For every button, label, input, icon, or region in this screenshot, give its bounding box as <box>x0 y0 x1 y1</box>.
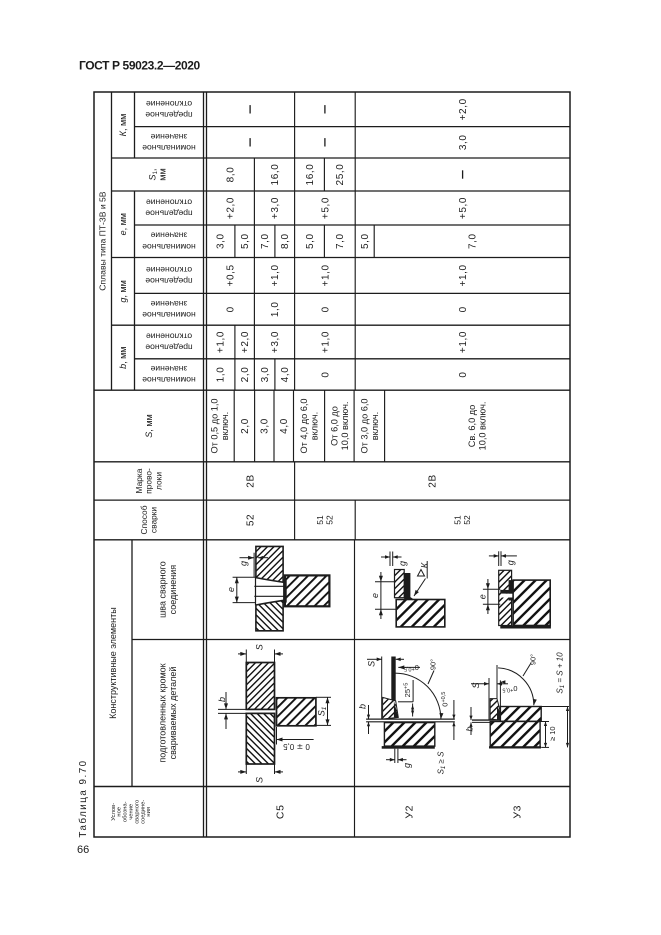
svg-text:16,0: 16,0 <box>305 164 316 186</box>
svg-text:+2,0: +2,0 <box>458 98 469 120</box>
svg-text:значение: значение <box>150 364 187 374</box>
svg-text:+1,0: +1,0 <box>458 264 469 286</box>
svg-text:2В: 2В <box>246 474 257 487</box>
svg-text:0: 0 <box>225 306 236 312</box>
svg-text:10,0 включ.: 10,0 включ. <box>478 402 488 451</box>
svg-text:0+0,5: 0+0,5 <box>441 692 450 707</box>
svg-text:включ.: включ. <box>220 412 230 440</box>
svg-text:52: 52 <box>246 514 257 526</box>
svg-text:Сплавы типа ПТ-3В и 5В: Сплавы типа ПТ-3В и 5В <box>98 191 108 290</box>
svg-text:От 4,0 до 6,0: От 4,0 до 6,0 <box>299 398 309 453</box>
svg-text:значение: значение <box>150 299 187 309</box>
svg-text:≥ 10: ≥ 10 <box>548 726 557 741</box>
svg-text:S: S <box>366 661 376 667</box>
svg-text:+2,0: +2,0 <box>225 197 236 219</box>
svg-text:g: g <box>397 561 407 566</box>
svg-text:25+5: 25+5 <box>403 683 412 698</box>
svg-text:От 3,0 до 6,0: От 3,0 до 6,0 <box>359 398 369 453</box>
svg-text:е: е <box>477 594 487 599</box>
svg-text:е, мм: е, мм <box>118 213 128 235</box>
svg-text:0: 0 <box>320 371 331 377</box>
svg-text:16,0: 16,0 <box>270 164 281 186</box>
svg-text:От 6,0 до: От 6,0 до <box>329 406 339 446</box>
svg-text:отклонение: отклонение <box>146 198 192 208</box>
svg-text:52: 52 <box>325 515 335 525</box>
svg-text:51: 51 <box>453 515 463 525</box>
svg-text:номинальное: номинальное <box>142 143 196 153</box>
svg-text:0: 0 <box>458 306 469 312</box>
svg-text:g: g <box>238 561 248 566</box>
svg-text:52: 52 <box>462 515 472 525</box>
svg-text:К: К <box>420 562 430 568</box>
svg-text:значение: значение <box>150 231 187 241</box>
svg-text:предельное: предельное <box>145 110 193 120</box>
svg-text:номинальное: номинальное <box>142 375 196 385</box>
svg-text:7,0: 7,0 <box>468 233 479 249</box>
svg-text:ния: ния <box>146 807 152 817</box>
svg-text:+1,0: +1,0 <box>320 331 331 353</box>
svg-text:3,0: 3,0 <box>260 418 271 434</box>
svg-text:предельное: предельное <box>145 276 193 286</box>
svg-text:+2,0: +2,0 <box>240 331 251 353</box>
svg-text:Св. 6,0 до: Св. 6,0 до <box>467 405 477 447</box>
svg-text:сварки: сварки <box>149 507 159 534</box>
svg-text:S: S <box>471 682 481 688</box>
svg-text:Способ: Способ <box>139 505 149 534</box>
svg-text:+0,5: +0,5 <box>225 264 236 286</box>
svg-text:значение: значение <box>150 132 187 142</box>
svg-text:локи: локи <box>154 472 164 490</box>
svg-text:S: S <box>255 644 265 650</box>
svg-text:мм: мм <box>158 168 168 180</box>
svg-text:свариваемых деталей: свариваемых деталей <box>168 667 178 760</box>
svg-text:номинальное: номинальное <box>142 242 196 252</box>
svg-text:1,0: 1,0 <box>216 367 227 383</box>
svg-text:3,0: 3,0 <box>260 367 271 383</box>
svg-text:отклонение: отклонение <box>146 332 192 342</box>
svg-text:+3,0: +3,0 <box>270 331 281 353</box>
svg-text:включ.: включ. <box>370 412 380 440</box>
svg-text:51: 51 <box>315 515 325 525</box>
svg-text:7,0: 7,0 <box>260 233 271 249</box>
svg-text:Конструктивные элементы: Конструктивные элементы <box>108 607 118 719</box>
svg-text:66: 66 <box>77 844 89 856</box>
svg-text:+3,0: +3,0 <box>270 197 281 219</box>
svg-text:2,0: 2,0 <box>240 418 251 434</box>
svg-text:10,0 включ.: 10,0 включ. <box>340 402 350 451</box>
svg-text:предельное: предельное <box>145 343 193 353</box>
svg-text:S, мм: S, мм <box>144 414 154 437</box>
svg-text:8,0: 8,0 <box>225 167 236 183</box>
svg-text:g: g <box>402 763 412 768</box>
svg-text:включ.: включ. <box>310 412 320 440</box>
svg-text:+1,0: +1,0 <box>320 264 331 286</box>
svg-text:К, мм: К, мм <box>118 114 128 137</box>
svg-text:0+0,5: 0+0,5 <box>404 663 419 672</box>
svg-text:Марка: Марка <box>134 468 144 493</box>
svg-text:0+0,5: 0+0,5 <box>502 684 517 693</box>
svg-text:b: b <box>465 726 475 731</box>
svg-text:У2: У2 <box>404 805 416 819</box>
svg-text:С5: С5 <box>275 804 287 819</box>
svg-text:5,0: 5,0 <box>360 233 371 249</box>
svg-text:3,0: 3,0 <box>216 233 227 249</box>
svg-text:+1,0: +1,0 <box>216 331 227 353</box>
svg-text:2В: 2В <box>428 474 439 487</box>
svg-text:b: b <box>217 697 227 702</box>
svg-text:0 ∓ 0,5: 0 ∓ 0,5 <box>283 742 310 751</box>
svg-text:g, мм: g, мм <box>118 280 128 302</box>
svg-text:0: 0 <box>458 371 469 377</box>
svg-text:90°: 90° <box>528 654 537 665</box>
svg-text:предельное: предельное <box>145 209 193 219</box>
svg-text:1,0: 1,0 <box>270 301 281 317</box>
svg-text:номинальное: номинальное <box>142 310 196 320</box>
svg-text:подготовленных кромок: подготовленных кромок <box>158 663 168 762</box>
svg-text:ГОСТ Р 59023.2—2020: ГОСТ Р 59023.2—2020 <box>79 59 201 73</box>
svg-text:+5,0: +5,0 <box>458 197 469 219</box>
svg-text:90°: 90° <box>429 659 438 670</box>
svg-text:0: 0 <box>320 306 331 312</box>
svg-text:5,0: 5,0 <box>240 233 251 249</box>
svg-text:4,0: 4,0 <box>280 367 291 383</box>
svg-text:прово-: прово- <box>144 468 154 494</box>
svg-text:отклонение: отклонение <box>146 99 192 109</box>
svg-text:4,0: 4,0 <box>279 418 290 434</box>
svg-text:b, мм: b, мм <box>118 346 128 368</box>
svg-text:S1 ≥ S: S1 ≥ S <box>437 751 448 775</box>
svg-text:b: b <box>358 704 368 709</box>
svg-text:2,0: 2,0 <box>240 367 251 383</box>
svg-text:отклонение: отклонение <box>146 265 192 275</box>
svg-text:+1,0: +1,0 <box>270 264 281 286</box>
svg-text:е: е <box>370 593 380 598</box>
svg-text:S1: S1 <box>316 706 328 716</box>
svg-text:Таблица 9.70: Таблица 9.70 <box>78 759 89 837</box>
svg-text:S: S <box>255 777 265 783</box>
svg-text:3,0: 3,0 <box>458 134 469 150</box>
svg-text:5,0: 5,0 <box>305 233 316 249</box>
svg-text:25,0: 25,0 <box>335 164 346 186</box>
svg-text:g: g <box>506 560 516 565</box>
svg-text:S1 = S + 10: S1 = S + 10 <box>556 652 567 694</box>
svg-text:+5,0: +5,0 <box>320 197 331 219</box>
svg-text:7,0: 7,0 <box>335 233 346 249</box>
svg-text:У3: У3 <box>511 805 523 819</box>
svg-text:е: е <box>226 587 236 592</box>
svg-text:соединения: соединения <box>168 565 178 615</box>
svg-text:шва сварного: шва сварного <box>158 561 168 618</box>
svg-text:От 0,5 до 1,0: От 0,5 до 1,0 <box>210 398 220 453</box>
svg-text:+1,0: +1,0 <box>458 331 469 353</box>
svg-text:8,0: 8,0 <box>280 233 291 249</box>
